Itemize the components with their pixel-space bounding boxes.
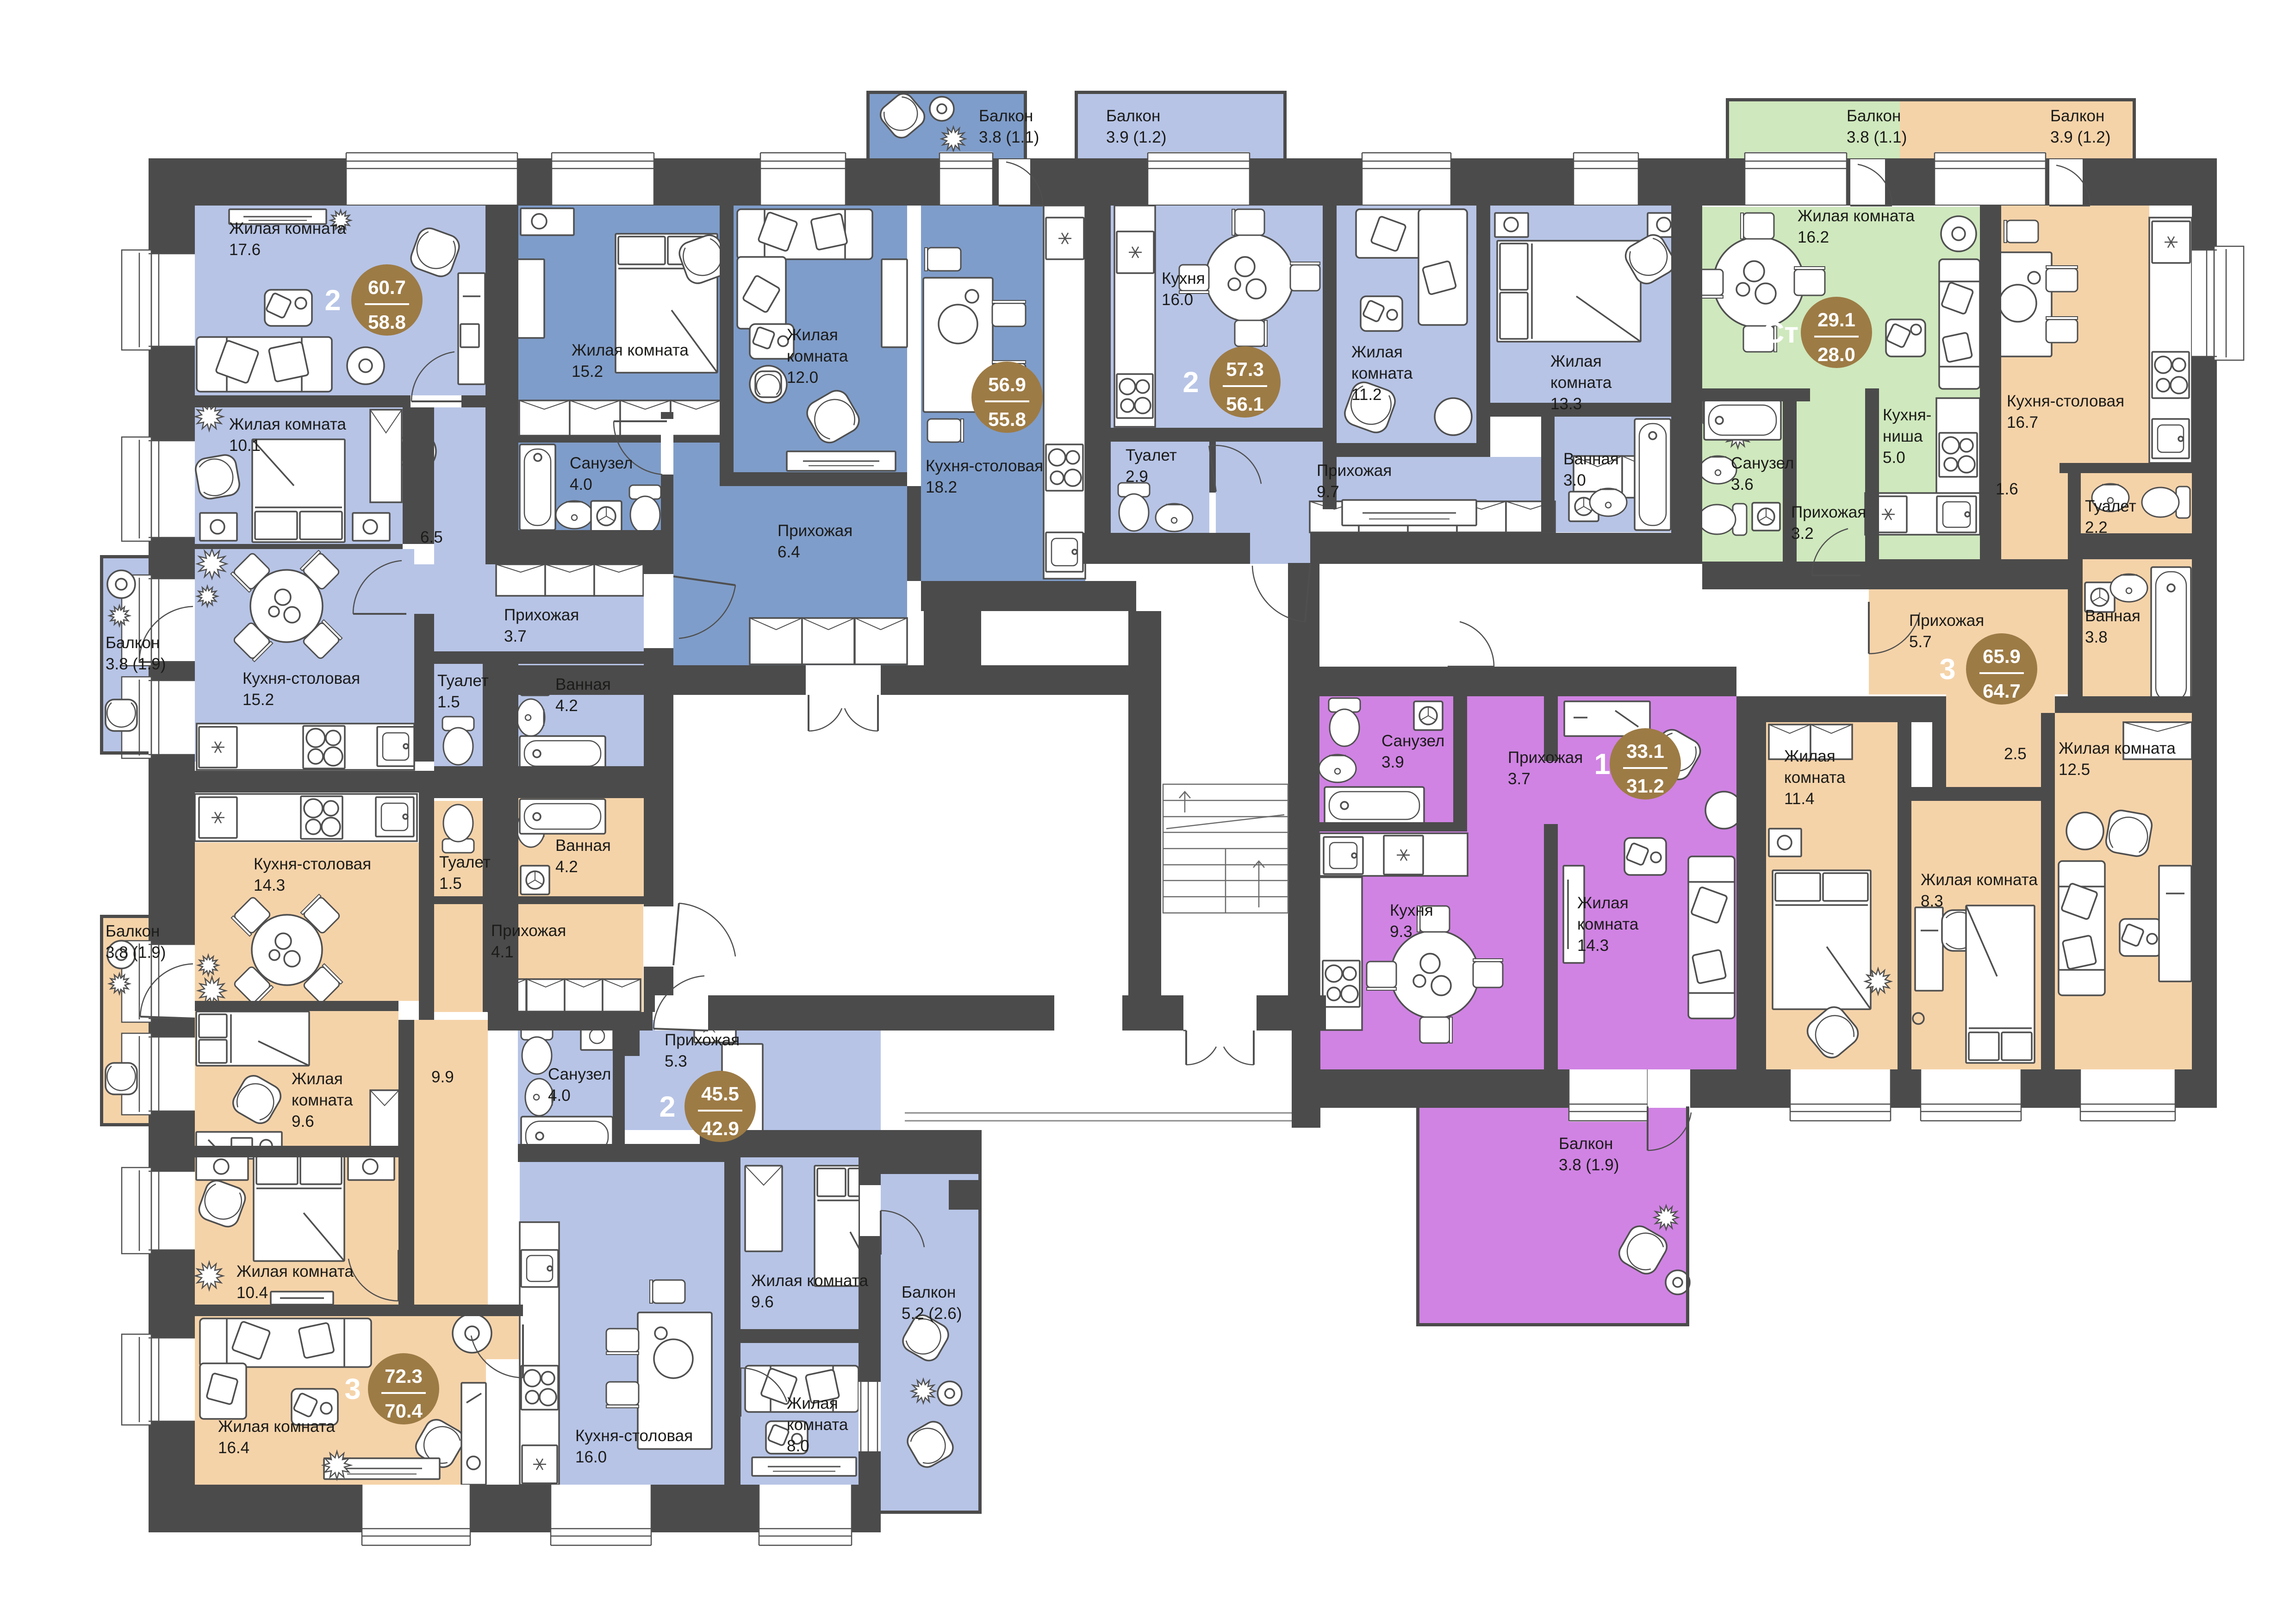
svg-text:12.0: 12.0 xyxy=(787,369,818,387)
svg-text:3.7: 3.7 xyxy=(1508,770,1531,788)
svg-text:3.8 (1.9): 3.8 (1.9) xyxy=(106,943,166,962)
svg-text:14.3: 14.3 xyxy=(254,876,285,894)
svg-text:3.6: 3.6 xyxy=(1731,475,1754,493)
svg-text:комната: комната xyxy=(1550,374,1612,392)
svg-text:2.2: 2.2 xyxy=(2085,518,2108,537)
svg-text:комната: комната xyxy=(787,347,848,365)
svg-text:Кухня: Кухня xyxy=(1162,269,1205,287)
svg-text:1: 1 xyxy=(1594,748,1610,781)
svg-text:Туалет: Туалет xyxy=(2085,497,2136,515)
svg-text:комната: комната xyxy=(292,1091,353,1109)
svg-text:Прихожая: Прихожая xyxy=(491,922,566,940)
svg-text:16.0: 16.0 xyxy=(575,1448,607,1466)
svg-text:1.6: 1.6 xyxy=(1996,480,2018,498)
svg-text:6.5: 6.5 xyxy=(420,528,443,546)
svg-text:10.4: 10.4 xyxy=(236,1284,268,1302)
svg-text:56.9: 56.9 xyxy=(988,374,1026,395)
svg-text:33.1: 33.1 xyxy=(1626,740,1664,762)
svg-text:9.7: 9.7 xyxy=(1317,483,1339,501)
svg-text:комната: комната xyxy=(1784,768,1846,787)
svg-text:Жилая: Жилая xyxy=(1351,343,1403,361)
svg-text:16.4: 16.4 xyxy=(218,1439,249,1457)
svg-text:55.8: 55.8 xyxy=(988,408,1026,430)
svg-text:Балкон: Балкон xyxy=(106,634,160,652)
svg-text:Санузел: Санузел xyxy=(548,1065,611,1083)
svg-text:Кухня-: Кухня- xyxy=(1883,406,1931,424)
svg-text:3.8: 3.8 xyxy=(2085,628,2108,646)
svg-text:Санузел: Санузел xyxy=(1381,732,1444,750)
svg-text:Жилая комната: Жилая комната xyxy=(751,1272,868,1290)
svg-text:9.3: 9.3 xyxy=(1390,923,1412,941)
svg-text:5.2 (2.6): 5.2 (2.6) xyxy=(902,1305,962,1323)
svg-text:64.7: 64.7 xyxy=(1983,680,2021,702)
svg-text:2: 2 xyxy=(945,381,961,414)
svg-text:72.3: 72.3 xyxy=(385,1365,423,1387)
svg-text:Балкон: Балкон xyxy=(902,1283,956,1301)
svg-text:18.2: 18.2 xyxy=(926,478,957,496)
svg-text:8.0: 8.0 xyxy=(787,1437,809,1455)
svg-text:4.2: 4.2 xyxy=(555,858,578,876)
svg-text:Жилая: Жилая xyxy=(1550,352,1602,370)
svg-text:Балкон: Балкон xyxy=(979,107,1033,125)
svg-text:комната: комната xyxy=(1351,364,1413,382)
svg-text:Прихожая: Прихожая xyxy=(778,522,852,540)
svg-text:2.9: 2.9 xyxy=(1126,468,1148,486)
svg-text:11.2: 11.2 xyxy=(1351,386,1382,404)
svg-text:Жилая комната: Жилая комната xyxy=(572,341,689,359)
svg-text:Прихожая: Прихожая xyxy=(665,1031,740,1049)
svg-text:3: 3 xyxy=(344,1373,361,1405)
svg-text:31.2: 31.2 xyxy=(1626,775,1664,797)
svg-text:3.9 (1.2): 3.9 (1.2) xyxy=(1106,128,1166,146)
svg-text:9.6: 9.6 xyxy=(292,1112,314,1131)
svg-text:Жилая: Жилая xyxy=(292,1070,343,1088)
svg-text:3.0: 3.0 xyxy=(1563,471,1586,489)
svg-text:Балкон: Балкон xyxy=(106,922,160,940)
svg-text:16.2: 16.2 xyxy=(1798,228,1829,246)
svg-text:Ванная: Ванная xyxy=(555,675,611,693)
svg-text:6.4: 6.4 xyxy=(778,543,800,561)
svg-text:15.2: 15.2 xyxy=(572,362,603,381)
svg-text:58.8: 58.8 xyxy=(368,311,406,333)
svg-text:ниша: ниша xyxy=(1883,427,1923,445)
svg-text:4.0: 4.0 xyxy=(570,475,592,493)
svg-text:45.5: 45.5 xyxy=(701,1083,739,1105)
svg-text:Санузел: Санузел xyxy=(570,454,633,472)
svg-text:5.0: 5.0 xyxy=(1883,449,1905,467)
svg-text:2: 2 xyxy=(1182,366,1199,399)
svg-text:29.1: 29.1 xyxy=(1817,309,1855,331)
svg-text:56.1: 56.1 xyxy=(1226,393,1264,415)
svg-text:Жилая: Жилая xyxy=(1784,747,1836,765)
svg-text:Прихожая: Прихожая xyxy=(1791,503,1866,521)
svg-text:Кухня-столовая: Кухня-столовая xyxy=(243,669,360,687)
svg-text:17.6: 17.6 xyxy=(229,241,261,259)
svg-text:16.0: 16.0 xyxy=(1162,291,1193,309)
svg-text:5.7: 5.7 xyxy=(1909,633,1932,651)
svg-text:16.7: 16.7 xyxy=(2007,413,2038,431)
svg-text:Балкон: Балкон xyxy=(1559,1135,1613,1153)
svg-text:Кухня: Кухня xyxy=(1390,901,1433,919)
svg-text:10.1: 10.1 xyxy=(229,437,261,455)
svg-text:4.0: 4.0 xyxy=(548,1087,571,1105)
svg-text:Жилая комната: Жилая комната xyxy=(1798,207,1915,225)
svg-text:комната: комната xyxy=(787,1416,848,1434)
svg-text:Жилая комната: Жилая комната xyxy=(229,219,346,237)
svg-text:Прихожая: Прихожая xyxy=(1909,612,1984,630)
svg-text:Кухня-столовая: Кухня-столовая xyxy=(254,855,371,873)
svg-text:1.5: 1.5 xyxy=(437,693,460,711)
svg-text:Ванная: Ванная xyxy=(1563,450,1619,468)
svg-text:65.9: 65.9 xyxy=(1983,645,2021,667)
svg-text:Балкон: Балкон xyxy=(1106,107,1160,125)
svg-text:3.9: 3.9 xyxy=(1381,753,1404,771)
svg-text:42.9: 42.9 xyxy=(701,1118,739,1139)
svg-text:13.3: 13.3 xyxy=(1550,395,1582,413)
svg-text:Жилая комната: Жилая комната xyxy=(2059,739,2176,757)
svg-text:11.4: 11.4 xyxy=(1784,790,1815,808)
svg-text:Прихожая: Прихожая xyxy=(504,606,579,624)
svg-text:9.6: 9.6 xyxy=(751,1293,774,1311)
svg-text:4.2: 4.2 xyxy=(555,697,578,715)
svg-text:2.5: 2.5 xyxy=(2004,745,2027,763)
svg-text:Жилая: Жилая xyxy=(787,1394,838,1412)
svg-text:Кухня-столовая: Кухня-столовая xyxy=(926,457,1043,475)
svg-text:60.7: 60.7 xyxy=(368,276,406,298)
svg-text:Кухня-столовая: Кухня-столовая xyxy=(575,1427,693,1445)
svg-text:Туалет: Туалет xyxy=(1126,446,1177,464)
svg-text:3.2: 3.2 xyxy=(1791,525,1814,543)
svg-text:1.5: 1.5 xyxy=(439,874,462,893)
svg-text:57.3: 57.3 xyxy=(1226,358,1264,380)
svg-text:Жилая комната: Жилая комната xyxy=(218,1418,335,1436)
svg-text:Ст: Ст xyxy=(1763,317,1798,349)
svg-text:3.9 (1.2): 3.9 (1.2) xyxy=(2050,128,2110,146)
svg-text:Жилая: Жилая xyxy=(787,326,838,344)
svg-text:Балкон: Балкон xyxy=(2050,107,2104,125)
svg-text:14.3: 14.3 xyxy=(1577,937,1609,955)
svg-text:70.4: 70.4 xyxy=(385,1400,423,1422)
svg-text:Туалет: Туалет xyxy=(437,672,489,690)
svg-text:2: 2 xyxy=(324,284,341,317)
svg-text:Кухня-столовая: Кухня-столовая xyxy=(2007,392,2124,410)
svg-text:комната: комната xyxy=(1577,915,1639,933)
svg-text:3.7: 3.7 xyxy=(504,627,527,645)
svg-text:9.9: 9.9 xyxy=(431,1068,454,1086)
svg-text:3.8 (1.1): 3.8 (1.1) xyxy=(979,128,1039,146)
svg-text:2: 2 xyxy=(659,1091,675,1123)
svg-text:Ванная: Ванная xyxy=(2085,607,2140,625)
svg-text:Прихожая: Прихожая xyxy=(1317,462,1392,480)
svg-text:Жилая: Жилая xyxy=(1577,894,1629,912)
svg-text:Санузел: Санузел xyxy=(1731,454,1794,472)
svg-text:28.0: 28.0 xyxy=(1817,344,1855,365)
svg-text:Туалет: Туалет xyxy=(439,853,491,871)
svg-text:3.8 (1.1): 3.8 (1.1) xyxy=(1847,128,1907,146)
svg-text:Жилая комната: Жилая комната xyxy=(229,415,346,433)
svg-text:Балкон: Балкон xyxy=(1847,107,1901,125)
svg-text:3: 3 xyxy=(1939,653,1955,686)
svg-text:Жилая комната: Жилая комната xyxy=(236,1262,354,1280)
svg-text:3.8 (1.9): 3.8 (1.9) xyxy=(106,655,166,673)
svg-text:Ванная: Ванная xyxy=(555,837,611,855)
svg-text:Прихожая: Прихожая xyxy=(1508,749,1583,767)
svg-text:8.3: 8.3 xyxy=(1921,892,1943,910)
svg-text:3.8 (1.9): 3.8 (1.9) xyxy=(1559,1156,1619,1174)
svg-text:Жилая комната: Жилая комната xyxy=(1921,871,2038,889)
svg-text:12.5: 12.5 xyxy=(2059,761,2090,779)
svg-text:4.1: 4.1 xyxy=(491,943,514,961)
svg-text:5.3: 5.3 xyxy=(665,1052,687,1070)
svg-text:15.2: 15.2 xyxy=(243,691,274,709)
